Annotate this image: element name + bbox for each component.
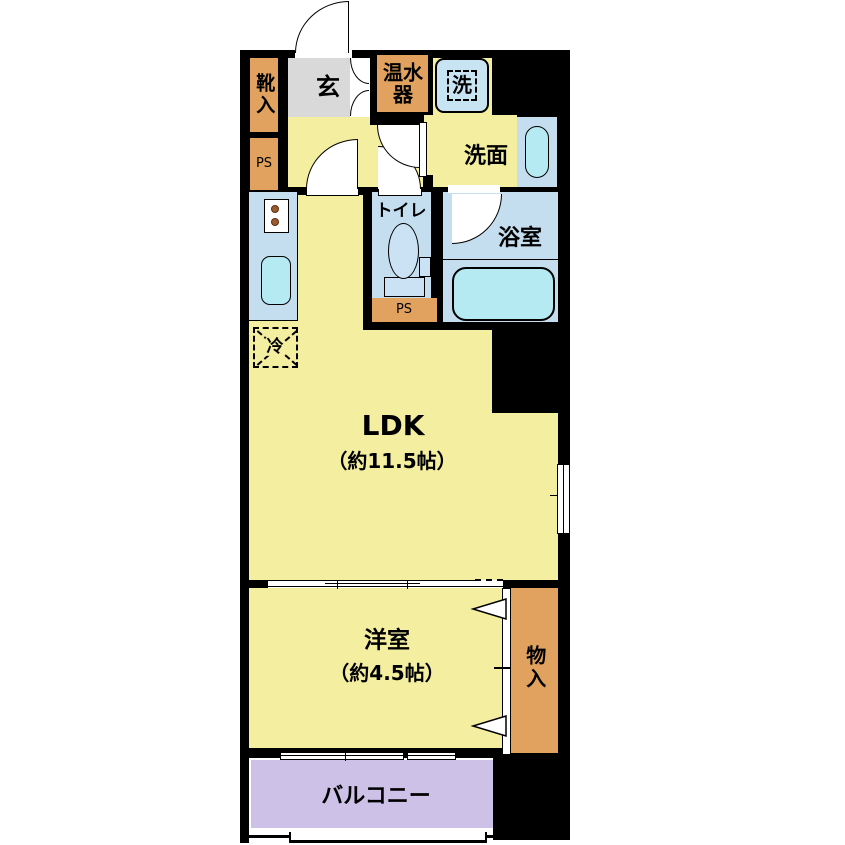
sliding-door-panel: [325, 583, 420, 584]
sliding-door-track-dashed: [475, 579, 503, 581]
water-heater-label: 温水器: [380, 62, 426, 105]
closet-door-triangle-icon: [470, 597, 508, 621]
floor-plan: 靴入 玄 PS 温水器 洗 洗面 トイレ PS 浴室 冷 LDK （約11.5帖…: [0, 0, 845, 845]
stove: [264, 199, 289, 233]
bathroom-label: 浴室: [498, 227, 542, 251]
sliding-door-tick: [407, 581, 408, 589]
balcony-window: [280, 752, 404, 760]
shoe-storage-label: 靴入: [254, 73, 275, 117]
entrance-label: 玄: [316, 75, 340, 101]
toilet-tank: [419, 257, 431, 277]
vanity-basin: [525, 126, 549, 178]
toilet-base: [384, 277, 425, 297]
western-room-label: 洋室: [364, 629, 410, 654]
ldk-window-mullion: [563, 465, 564, 533]
toilet-label: トイレ: [376, 202, 427, 220]
pipe-space-lower-label: PS: [396, 303, 412, 317]
balcony-step: [289, 832, 487, 843]
ldk-window-tick: [550, 495, 558, 496]
sliding-door-track: [268, 586, 503, 587]
balcony-window: [407, 752, 456, 760]
balcony-window-tick: [345, 751, 346, 761]
western-room-size-label: （約4.5帖）: [329, 663, 444, 685]
pipe-space-upper-label: PS: [256, 157, 272, 171]
balcony-window-rail: [408, 755, 455, 756]
washroom-door-leaf: [419, 122, 427, 177]
refrigerator-label: 冷: [266, 338, 285, 356]
sliding-door-track: [268, 580, 475, 581]
ldk-floor-right: [492, 413, 558, 580]
wall-left-extension: [240, 746, 249, 843]
closet-door-triangle-icon: [470, 714, 508, 738]
balcony-window-rail: [281, 755, 403, 756]
wall-under-heater: [370, 112, 424, 125]
sliding-door-tick: [337, 580, 338, 589]
ldk-size-label: （約11.5帖）: [327, 451, 456, 473]
storage-label: 物入: [523, 645, 545, 691]
closet-door-tick: [494, 667, 511, 669]
washroom-label: 洗面: [464, 145, 508, 169]
bathroom-divider: [443, 259, 558, 260]
ldk-label: LDK: [362, 411, 425, 441]
wall-stub-washroom-door: [423, 175, 433, 189]
kitchen-sink: [261, 256, 291, 305]
washing-machine-label: 洗: [452, 75, 472, 97]
balcony-label: バルコニー: [321, 785, 431, 809]
stove-burner-icon: [271, 218, 279, 226]
entrance-door-arc: [295, 1, 349, 53]
wall-bottom-right-mass: [493, 757, 570, 840]
bathtub: [452, 267, 555, 321]
stove-burner-icon: [271, 205, 279, 213]
bathroom-door-gap: [448, 185, 500, 193]
toilet-bowl: [388, 223, 419, 279]
